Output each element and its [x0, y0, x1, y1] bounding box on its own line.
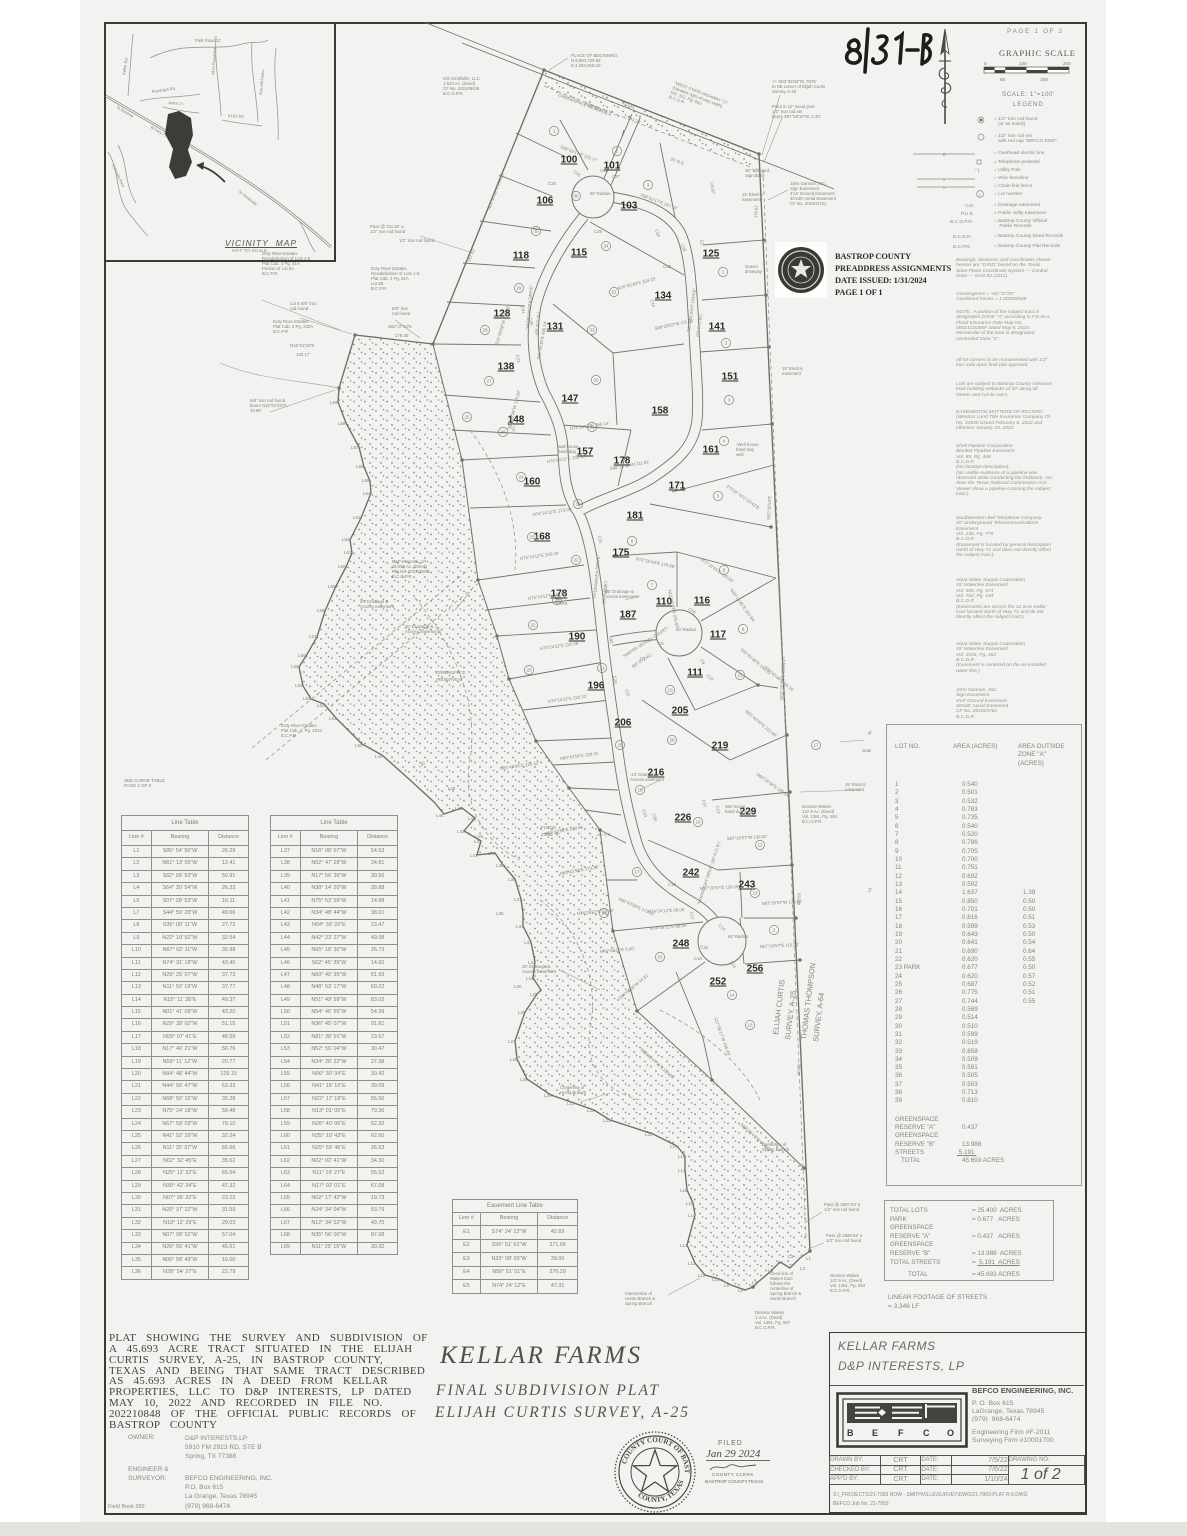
svg-text:C39: C39	[651, 813, 659, 823]
svg-text:driveway: driveway	[745, 269, 763, 274]
svg-text:138: 138	[498, 362, 515, 373]
svg-text:C25: C25	[548, 181, 556, 186]
svg-text:N74°24'12"E 173.00': N74°24'12"E 173.00'	[532, 507, 572, 517]
svg-text:158: 158	[652, 406, 669, 417]
svg-text:L19: L19	[670, 1144, 678, 1149]
svg-text:L58: L58	[317, 608, 325, 613]
svg-text:rod found: rod found	[392, 311, 411, 316]
svg-text:N72°16'43"E 179.58': N72°16'43"E 179.58'	[636, 556, 676, 569]
svg-text:C22: C22	[510, 423, 516, 432]
svg-text:B.C.O.P.R.: B.C.O.P.R.	[392, 574, 413, 579]
svg-text:L56: L56	[298, 653, 306, 658]
svg-text:L48: L48	[448, 786, 456, 791]
svg-text:Spring Branch: Spring Branch	[625, 1301, 653, 1306]
svg-text:rod found: rod found	[290, 306, 309, 311]
svg-text:C26: C26	[572, 169, 582, 178]
svg-text:B.C.P.R.: B.C.P.R.	[281, 733, 297, 738]
svg-text:C27: C27	[612, 174, 620, 179]
svg-text:L62: L62	[342, 537, 350, 542]
svg-text:248: 248	[673, 939, 690, 950]
svg-text:B.C.O.P.R.: B.C.O.P.R.	[755, 1325, 776, 1330]
svg-text:To Smithville: To Smithville	[237, 189, 258, 207]
svg-text:L40: L40	[488, 851, 496, 856]
svg-text:L16: L16	[680, 1188, 688, 1193]
svg-text:L41: L41	[470, 853, 478, 858]
svg-text:N70°35'49"E 224.25': N70°35'49"E 224.25'	[617, 276, 657, 291]
svg-text:Jetha Ln: Jetha Ln	[168, 101, 183, 106]
svg-text:N74°24'12"E 226.33': N74°24'12"E 226.33'	[547, 694, 587, 704]
svg-text:Gate: Gate	[862, 748, 872, 753]
svg-text:1/2" iron rod found: 1/2" iron rod found	[370, 229, 406, 234]
svg-text:219: 219	[712, 741, 729, 752]
svg-text:4: 4	[723, 439, 726, 444]
svg-text:O.E.: O.E.	[965, 203, 975, 209]
svg-text:28: 28	[482, 328, 488, 333]
svg-text:C29: C29	[594, 229, 602, 234]
svg-text:1: 1	[979, 192, 982, 197]
svg-text:-RESERVE-B: -RESERVE-B	[436, 677, 462, 682]
svg-text:N74°24'12"E 88.05': N74°24'12"E 88.05'	[650, 923, 688, 931]
svg-text:34: 34	[603, 244, 609, 249]
svg-text:C19: C19	[641, 809, 649, 819]
svg-text:C37: C37	[701, 799, 707, 808]
svg-text:O: O	[947, 1428, 954, 1438]
svg-text:CF No. 201503761: CF No. 201503761	[790, 201, 827, 206]
svg-text:160: 160	[524, 477, 541, 488]
svg-text:187: 187	[620, 610, 637, 621]
svg-text:L51: L51	[329, 716, 337, 721]
svg-text:C11: C11	[624, 689, 631, 698]
svg-text:C34: C34	[654, 229, 662, 239]
svg-text:L57: L57	[309, 634, 317, 639]
svg-text:2: 2	[725, 341, 728, 346]
svg-text:Sign Base: Sign Base	[745, 173, 765, 178]
svg-text:ZONE "A": ZONE "A"	[541, 832, 561, 837]
svg-text:18: 18	[695, 820, 701, 825]
svg-text:115: 115	[571, 248, 588, 259]
svg-text:L7: L7	[752, 1280, 758, 1285]
svg-text:Park Road 1C: Park Road 1C	[195, 38, 221, 43]
svg-text:L60: L60	[338, 564, 346, 569]
svg-text:E: E	[872, 1428, 878, 1438]
svg-text:N21°45'16"E 694.51': N21°45'16"E 694.51'	[486, 171, 505, 210]
svg-text:60' Radius: 60' Radius	[590, 191, 610, 196]
svg-text:L29: L29	[530, 992, 538, 997]
svg-text:PAGE 2 OF 2: PAGE 2 OF 2	[124, 783, 152, 788]
svg-text:KLBJ Rd: KLBJ Rd	[228, 113, 244, 119]
svg-text:hand dug: hand dug	[558, 449, 577, 454]
svg-text:181: 181	[627, 511, 644, 522]
svg-text:L31: L31	[526, 976, 534, 981]
svg-text:14: 14	[729, 993, 735, 998]
svg-text:2: 2	[773, 928, 776, 933]
svg-text:36: 36	[573, 194, 579, 199]
svg-text:easement: easement	[845, 787, 865, 792]
svg-text:L11: L11	[698, 1273, 706, 1278]
svg-text:C18: C18	[668, 882, 676, 887]
svg-text:Access easement: Access easement	[630, 777, 665, 782]
svg-text:167.63': 167.63'	[466, 247, 476, 262]
svg-text:1/2" iron rod found: 1/2" iron rod found	[826, 1238, 862, 1243]
svg-text:141: 141	[709, 322, 726, 333]
svg-text:B: B	[847, 1428, 854, 1438]
svg-text:L8: L8	[738, 1288, 744, 1293]
svg-text:P.U.E.: P.U.E.	[961, 211, 974, 217]
svg-text:N60°43'58"E 173.22': N60°43'58"E 173.22'	[618, 896, 656, 917]
svg-text:171: 171	[669, 481, 686, 492]
svg-text:7: 7	[651, 583, 654, 588]
svg-text:L66: L66	[356, 464, 364, 469]
svg-text:17: 17	[813, 743, 819, 748]
svg-text:C: C	[923, 1428, 930, 1438]
svg-text:80'/25': 80'/25'	[796, 1063, 802, 1075]
svg-text:25: 25	[617, 743, 623, 748]
svg-text:30: 30	[575, 502, 581, 507]
svg-text:C15: C15	[729, 960, 738, 970]
svg-text:C40: C40	[608, 635, 614, 644]
svg-text:L23: L23	[567, 1101, 575, 1106]
svg-text:S02°35'53"E 2585.17': S02°35'53"E 2585.17'	[779, 655, 786, 700]
svg-text:C16: C16	[694, 956, 702, 961]
svg-text:1: 1	[553, 129, 556, 134]
svg-text:179.35': 179.35'	[395, 333, 409, 338]
svg-text:L26: L26	[510, 1057, 518, 1062]
svg-text:L68: L68	[338, 421, 346, 426]
svg-text:L54: L54	[295, 683, 303, 688]
svg-text:S87°20'57"W 138.52': S87°20'57"W 138.52'	[727, 834, 768, 841]
svg-text:226: 226	[675, 813, 692, 824]
svg-text:x: x	[943, 177, 946, 182]
svg-text:GREENSPACE: GREENSPACE	[436, 670, 466, 675]
svg-text:N65°43'58"E 228.41': N65°43'58"E 228.41'	[559, 751, 599, 761]
svg-text:L25: L25	[520, 1077, 528, 1082]
svg-text:B.C.O.P.R.: B.C.O.P.R.	[830, 1288, 851, 1293]
svg-text:C42: C42	[600, 168, 608, 173]
svg-text:116: 116	[694, 596, 711, 607]
svg-text:100: 100	[561, 155, 578, 166]
svg-text:103: 103	[621, 201, 638, 212]
svg-text:51: 51	[611, 290, 617, 295]
svg-text:111: 111	[687, 668, 703, 679]
svg-text:C31: C31	[597, 535, 603, 544]
svg-text:25' O.E.: 25' O.E.	[670, 156, 686, 166]
svg-text:134: 134	[655, 291, 672, 302]
svg-text:L28: L28	[518, 1010, 526, 1015]
svg-text:L67: L67	[351, 445, 359, 450]
svg-text:100: 100	[1019, 61, 1027, 66]
svg-text:L69: L69	[330, 400, 338, 405]
svg-text:N39°18'45"E 207.84': N39°18'45"E 207.84'	[729, 588, 756, 623]
svg-text:F: F	[898, 1428, 904, 1438]
svg-text:242: 242	[683, 868, 700, 879]
svg-text:28: 28	[669, 738, 675, 743]
svg-text:Spring Branch: Spring Branch	[762, 1147, 790, 1152]
svg-text:175: 175	[613, 548, 630, 559]
svg-text:L27: L27	[508, 1039, 516, 1044]
svg-text:131: 131	[547, 322, 564, 333]
svg-text:60' Radius: 60' Radius	[676, 627, 696, 632]
svg-text:24: 24	[518, 475, 524, 480]
svg-text:Hunts Branch: Hunts Branch	[560, 1090, 587, 1095]
svg-text:L35: L35	[496, 911, 504, 916]
svg-text:hand dug well: hand dug well	[725, 809, 752, 814]
svg-text:S27°06'17"W 136.49': S27°06'17"W 136.49'	[713, 1017, 732, 1057]
svg-text:L33: L33	[524, 940, 532, 945]
svg-text:L50: L50	[355, 743, 363, 748]
svg-text:125: 125	[703, 249, 720, 260]
svg-text:C41: C41	[520, 305, 526, 314]
svg-text:252: 252	[710, 977, 727, 988]
svg-text:L2: L2	[800, 1266, 806, 1271]
svg-text:32: 32	[593, 378, 599, 383]
svg-text:5: 5	[717, 494, 720, 499]
svg-text:3: 3	[728, 398, 731, 403]
svg-text:L59: L59	[328, 584, 336, 589]
svg-text:60' Radius: 60' Radius	[728, 934, 748, 939]
svg-text:E: E	[943, 152, 946, 157]
svg-text:161: 161	[703, 445, 720, 456]
svg-text:L18: L18	[678, 1154, 686, 1159]
svg-text:22: 22	[530, 623, 536, 628]
svg-text:150: 150	[1040, 77, 1048, 82]
svg-text:17: 17	[634, 870, 640, 875]
svg-text:B.C.P.R.: B.C.P.R.	[273, 329, 289, 334]
svg-text:C10: C10	[705, 673, 715, 682]
svg-text:B.C.P.R.: B.C.P.R.	[953, 244, 971, 250]
svg-text:B.C.P.R.: B.C.P.R.	[262, 271, 278, 276]
svg-text:L9: L9	[724, 1283, 730, 1288]
svg-text:L14: L14	[688, 1213, 696, 1218]
svg-text:50: 50	[1000, 77, 1006, 82]
svg-text:L13: L13	[680, 1243, 688, 1248]
svg-text:147: 147	[562, 394, 579, 405]
svg-text:N72°16'43"E 235.63': N72°16'43"E 235.63'	[699, 557, 734, 584]
svg-text:B.C.D.R.: B.C.D.R.	[953, 234, 972, 240]
svg-text:L21: L21	[603, 1118, 611, 1123]
svg-text:Access easement: Access easement	[604, 594, 639, 599]
svg-text:L37: L37	[514, 897, 522, 902]
svg-text:1: 1	[722, 270, 725, 275]
svg-text:25: 25	[464, 415, 470, 420]
svg-text:(60' R.O.W.): (60' R.O.W.)	[631, 652, 653, 669]
svg-text:L49: L49	[375, 754, 383, 759]
svg-text:10: 10	[667, 688, 673, 693]
svg-text:L3: L3	[788, 1254, 794, 1259]
svg-text:Kellin Rd: Kellin Rd	[121, 57, 129, 75]
svg-text:o: o	[943, 185, 946, 190]
svg-text:26: 26	[500, 430, 506, 435]
svg-text:Randolph Rd: Randolph Rd	[151, 86, 175, 94]
svg-text:9: 9	[742, 627, 745, 632]
svg-text:C8: C8	[658, 641, 664, 646]
svg-text:Access easement: Access easement	[360, 604, 395, 609]
svg-text:easement: easement	[742, 197, 762, 202]
svg-text:3': 3'	[868, 888, 872, 894]
svg-text:N55°43'39"E 215.88': N55°43'39"E 215.88'	[744, 709, 778, 738]
svg-text:12: 12	[757, 843, 763, 848]
svg-text:256: 256	[747, 964, 764, 975]
svg-text:"MOONLIGHT DRIVE" (60' R.O.W.): "MOONLIGHT DRIVE" (60' R.O.W.)	[696, 840, 721, 905]
svg-text:L52: L52	[317, 703, 325, 708]
svg-text:Access easements: Access easements	[405, 629, 441, 634]
svg-text:L30: L30	[514, 984, 522, 989]
svg-text:200: 200	[1063, 61, 1071, 66]
svg-text:168: 168	[534, 532, 551, 543]
svg-text:140.17': 140.17'	[296, 352, 310, 357]
svg-text:Hunts Branch: Hunts Branch	[770, 1296, 797, 1301]
svg-text:L10: L10	[712, 1277, 720, 1282]
svg-text:L65: L65	[362, 478, 370, 483]
svg-text:1/2" iron rod found: 1/2" iron rod found	[824, 1207, 860, 1212]
svg-text:L17: L17	[678, 1168, 686, 1173]
svg-text:2°9'16" N72°16'43"E: 2°9'16" N72°16'43"E	[725, 484, 760, 511]
svg-text:0: 0	[984, 61, 987, 66]
svg-text:S82°47'44"E: S82°47'44"E	[388, 324, 412, 329]
svg-text:L55: L55	[291, 664, 299, 669]
svg-text:106: 106	[537, 196, 554, 207]
svg-text:80'/DS: 80'/DS	[796, 893, 802, 905]
svg-text:easement: easement	[782, 371, 802, 376]
svg-text:N74°24'12"E 88.05': N74°24'12"E 88.05'	[648, 907, 686, 914]
svg-text:L45: L45	[455, 806, 463, 811]
svg-text:L64: L64	[363, 491, 371, 496]
svg-text:PARK: PARK	[556, 601, 568, 606]
svg-text:L61: L61	[344, 550, 352, 555]
svg-text:-40' O.E.: -40' O.E.	[596, 832, 612, 837]
svg-text:L46: L46	[436, 813, 444, 818]
svg-text:SURVEY, A-64: SURVEY, A-64	[811, 992, 826, 1042]
svg-text:L24: L24	[544, 1093, 552, 1098]
svg-text:FLOOD: FLOOD	[541, 825, 556, 830]
svg-text:29: 29	[516, 286, 522, 291]
svg-text:B.C.P.R.: B.C.P.R.	[371, 286, 387, 291]
svg-text:L15: L15	[686, 1201, 694, 1206]
svg-text:C17: C17	[689, 911, 695, 920]
svg-text:C13: C13	[715, 805, 721, 814]
svg-text:23: 23	[529, 535, 535, 540]
svg-text:well: well	[736, 452, 743, 457]
svg-text:N18°01'03"E: N18°01'03"E	[290, 343, 315, 348]
svg-text:B.C.O.P.R.: B.C.O.P.R.	[950, 219, 973, 225]
svg-text:22: 22	[573, 558, 579, 563]
svg-text:21: 21	[599, 666, 605, 671]
svg-text:20: 20	[526, 668, 532, 673]
svg-text:°├: °├	[975, 167, 981, 174]
svg-text:15: 15	[657, 955, 663, 960]
svg-text:117: 117	[710, 630, 727, 641]
svg-text:139.01': 139.01'	[753, 205, 759, 218]
svg-text:L43: L43	[457, 829, 465, 834]
svg-text:Access easement: Access easement	[522, 969, 557, 974]
svg-text:L38: L38	[508, 877, 516, 882]
svg-text:Survey, A-25: Survey, A-25	[772, 89, 797, 94]
svg-text:118: 118	[513, 251, 530, 262]
svg-text:3: 3	[647, 183, 650, 188]
svg-text:SURVEY, A-25: SURVEY, A-25	[783, 990, 798, 1040]
svg-text:L34: L34	[516, 924, 524, 929]
svg-text:N74°24'12"E 205.00': N74°24'12"E 205.00'	[519, 551, 559, 561]
svg-text:33: 33	[589, 328, 595, 333]
svg-text:S02°35'53"E: S02°35'53"E	[766, 496, 772, 520]
svg-text:35: 35	[533, 229, 539, 234]
svg-text:L20: L20	[645, 1132, 653, 1137]
svg-text:11: 11	[738, 673, 743, 678]
svg-text:206: 206	[615, 718, 632, 729]
svg-text:L44: L44	[468, 816, 476, 821]
svg-text:L4: L4	[778, 1260, 784, 1265]
svg-text:Fish Hill Farms: Fish Hill Farms	[259, 69, 265, 95]
svg-text:196: 196	[588, 681, 605, 692]
svg-text:B.C.O.P.R.: B.C.O.P.R.	[802, 819, 823, 824]
svg-text:bears S87°58'16"W, 0.33': bears S87°58'16"W, 0.33'	[772, 114, 821, 119]
svg-text:13: 13	[752, 891, 758, 896]
svg-text:151: 151	[722, 372, 739, 383]
svg-text:205: 205	[672, 706, 689, 717]
svg-text:L39: L39	[496, 863, 504, 868]
svg-text:13: 13	[747, 1023, 753, 1028]
svg-text:L12: L12	[688, 1261, 696, 1266]
svg-text:C33: C33	[663, 264, 671, 269]
svg-text:L42: L42	[474, 839, 482, 844]
svg-text:4': 4'	[868, 731, 872, 737]
svg-text:C9: C9	[699, 658, 706, 666]
svg-text:27: 27	[486, 379, 492, 384]
svg-text:L1: L1	[806, 1256, 812, 1261]
svg-text:E 3,293,066.02': E 3,293,066.02'	[571, 63, 601, 68]
svg-text:N74°24'12"E 225.06': N74°24'12"E 225.06'	[539, 641, 579, 651]
svg-text:10.86': 10.86'	[250, 408, 262, 413]
svg-text:N87°20'57"E 113.12': N87°20'57"E 113.12'	[760, 942, 800, 949]
svg-text:6: 6	[631, 539, 634, 544]
svg-text:L22: L22	[587, 1108, 595, 1113]
svg-text:B.C.O.P.R.: B.C.O.P.R.	[443, 91, 464, 96]
svg-text:120.87': 120.87'	[709, 181, 716, 195]
svg-text:L63: L63	[353, 515, 361, 520]
svg-text:C23: C23	[515, 354, 521, 363]
svg-text:L53: L53	[303, 696, 311, 701]
svg-text:2: 2	[616, 149, 619, 154]
